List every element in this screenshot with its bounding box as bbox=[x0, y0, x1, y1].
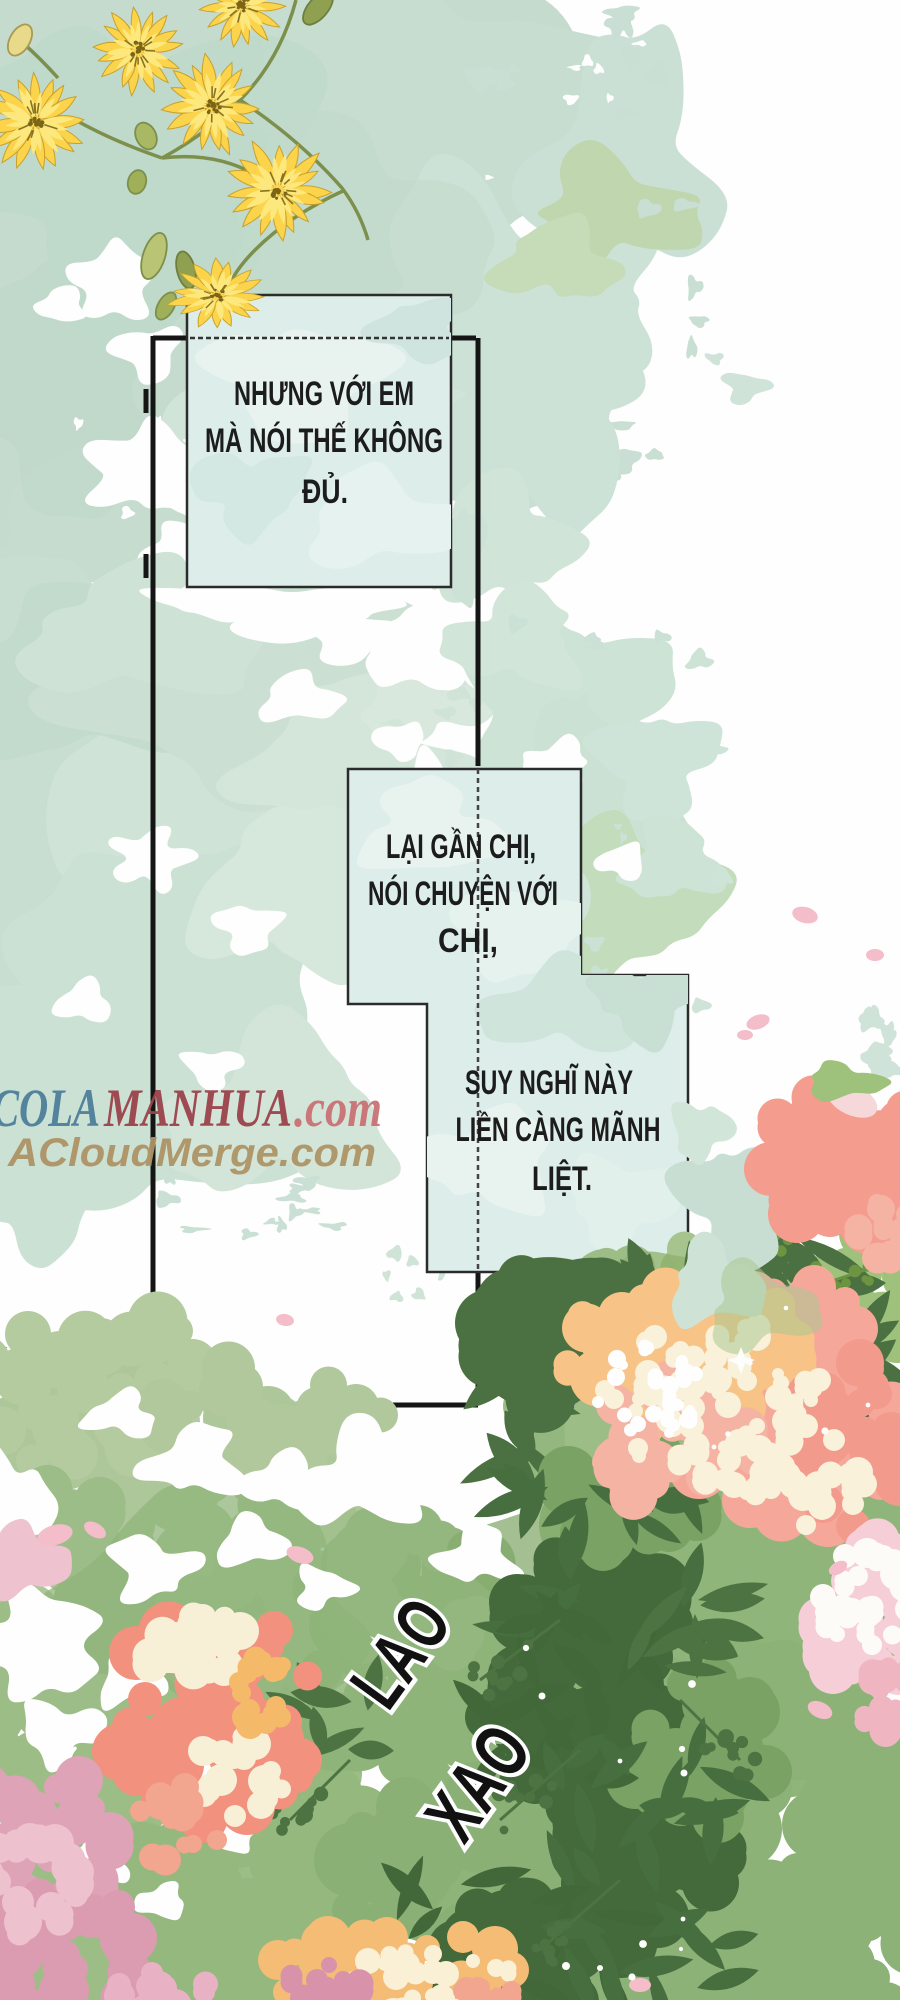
svg-text:ACloudMerge.com: ACloudMerge.com bbox=[7, 1131, 376, 1175]
svg-text:MÀ NÓI THẾ KHÔNG: MÀ NÓI THẾ KHÔNG bbox=[205, 421, 443, 460]
svg-text:NHƯNG VỚI EM: NHƯNG VỚI EM bbox=[234, 375, 414, 413]
svg-text:LIỀN CÀNG MÃNH: LIỀN CÀNG MÃNH bbox=[456, 1111, 661, 1149]
svg-text:SUY NGHĨ NÀY: SUY NGHĨ NÀY bbox=[465, 1064, 633, 1102]
svg-text:CHỊ,: CHỊ, bbox=[438, 922, 498, 960]
svg-text:COLA: COLA bbox=[0, 1078, 100, 1138]
svg-text:.com: .com bbox=[294, 1078, 382, 1138]
svg-text:MANHUA: MANHUA bbox=[103, 1078, 292, 1138]
svg-text:NÓI CHUYỆN VỚI: NÓI CHUYỆN VỚI bbox=[368, 875, 558, 913]
svg-text:LẠI GẦN CHỊ,: LẠI GẦN CHỊ, bbox=[386, 828, 536, 866]
svg-text:ĐỦ.: ĐỦ. bbox=[302, 473, 348, 511]
svg-text:LIỆT.: LIỆT. bbox=[532, 1160, 592, 1198]
